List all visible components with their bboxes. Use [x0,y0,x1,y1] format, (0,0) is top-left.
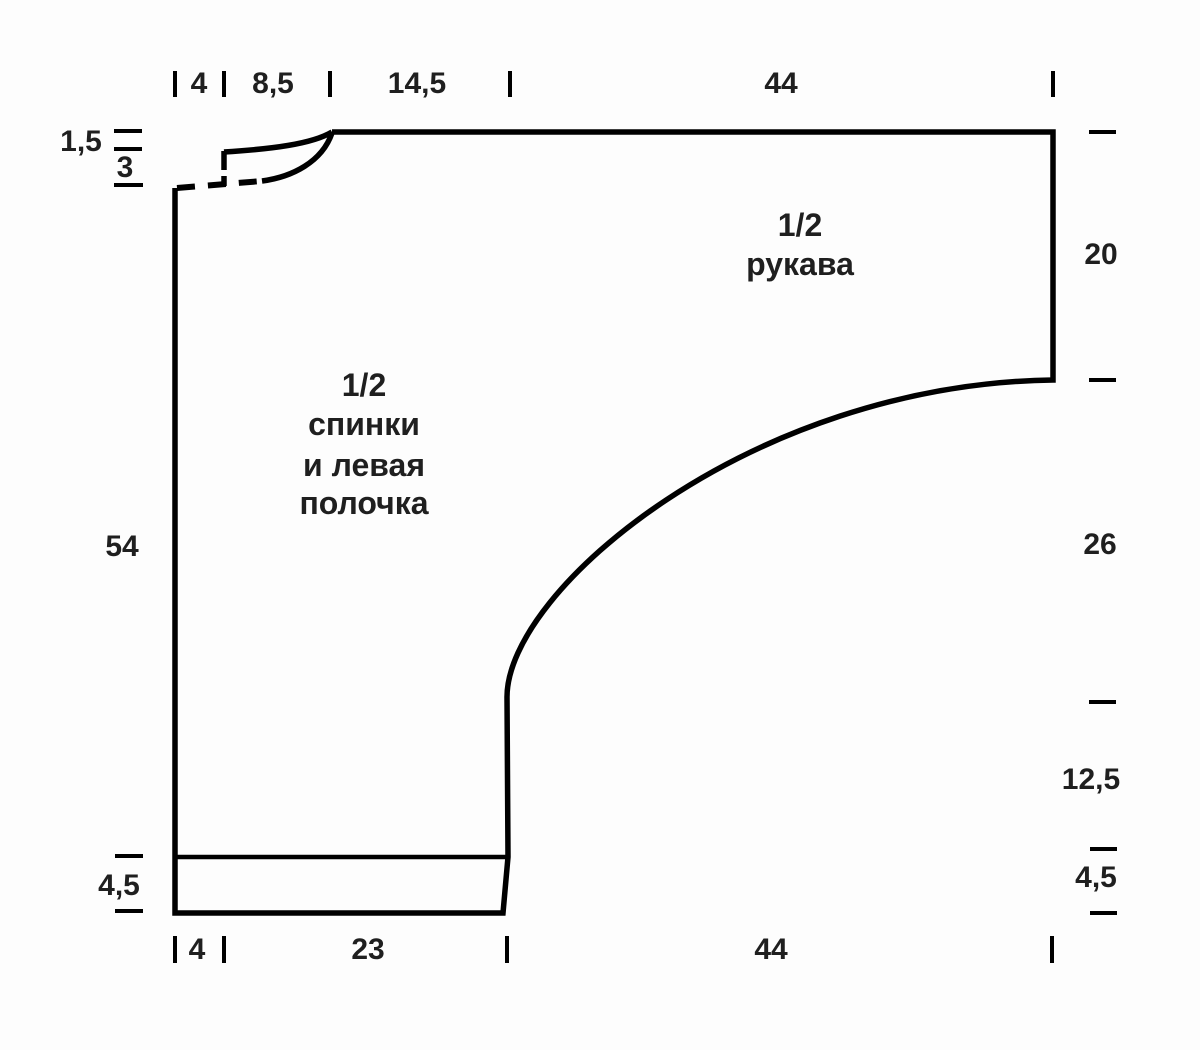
right-measure-12-5: 12,5 [1062,765,1120,795]
right-measure-20: 20 [1084,240,1117,270]
top-measure-4: 4 [191,69,208,99]
sleeve-label-line2: рукава [746,248,854,280]
left-measure-1-5: 1,5 [60,127,102,157]
top-measure-8-5: 8,5 [252,69,294,99]
sleeve-label-line1: 1/2 [778,209,822,241]
pattern-diagram: 4 8,5 14,5 44 4 23 44 1,5 3 54 4,5 20 26… [0,0,1200,1050]
right-measure-26: 26 [1083,530,1116,560]
bottom-measure-44: 44 [754,935,787,965]
left-measure-4-5: 4,5 [98,871,140,901]
top-measure-44: 44 [764,69,797,99]
body-label-line4: полочка [299,487,428,519]
front-neckline-dashed [177,181,262,188]
top-measure-14-5: 14,5 [388,69,446,99]
left-measure-54: 54 [105,532,138,562]
body-label-line1: 1/2 [342,369,386,401]
bottom-measure-23: 23 [351,935,384,965]
pattern-outline-svg [0,0,1200,1050]
pattern-piece-outline [175,132,1053,913]
body-label-line3: и левая [303,449,425,481]
right-measure-4-5: 4,5 [1075,863,1117,893]
bottom-measure-4: 4 [189,935,206,965]
front-neckline-curve [262,133,332,181]
back-neckline-curve [224,132,332,152]
left-measure-3: 3 [117,153,134,183]
body-label-line2: спинки [308,408,420,440]
